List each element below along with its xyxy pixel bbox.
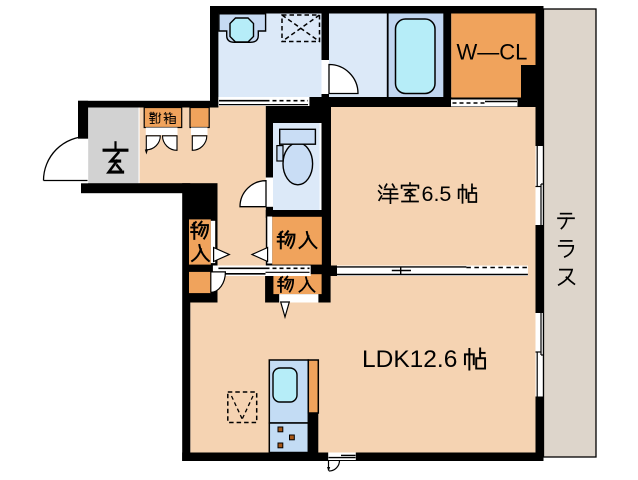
svg-text:LDK12.6: LDK12.6: [362, 346, 457, 373]
svg-text:W—CL: W—CL: [457, 40, 528, 65]
svg-text:6.5: 6.5: [422, 182, 452, 206]
